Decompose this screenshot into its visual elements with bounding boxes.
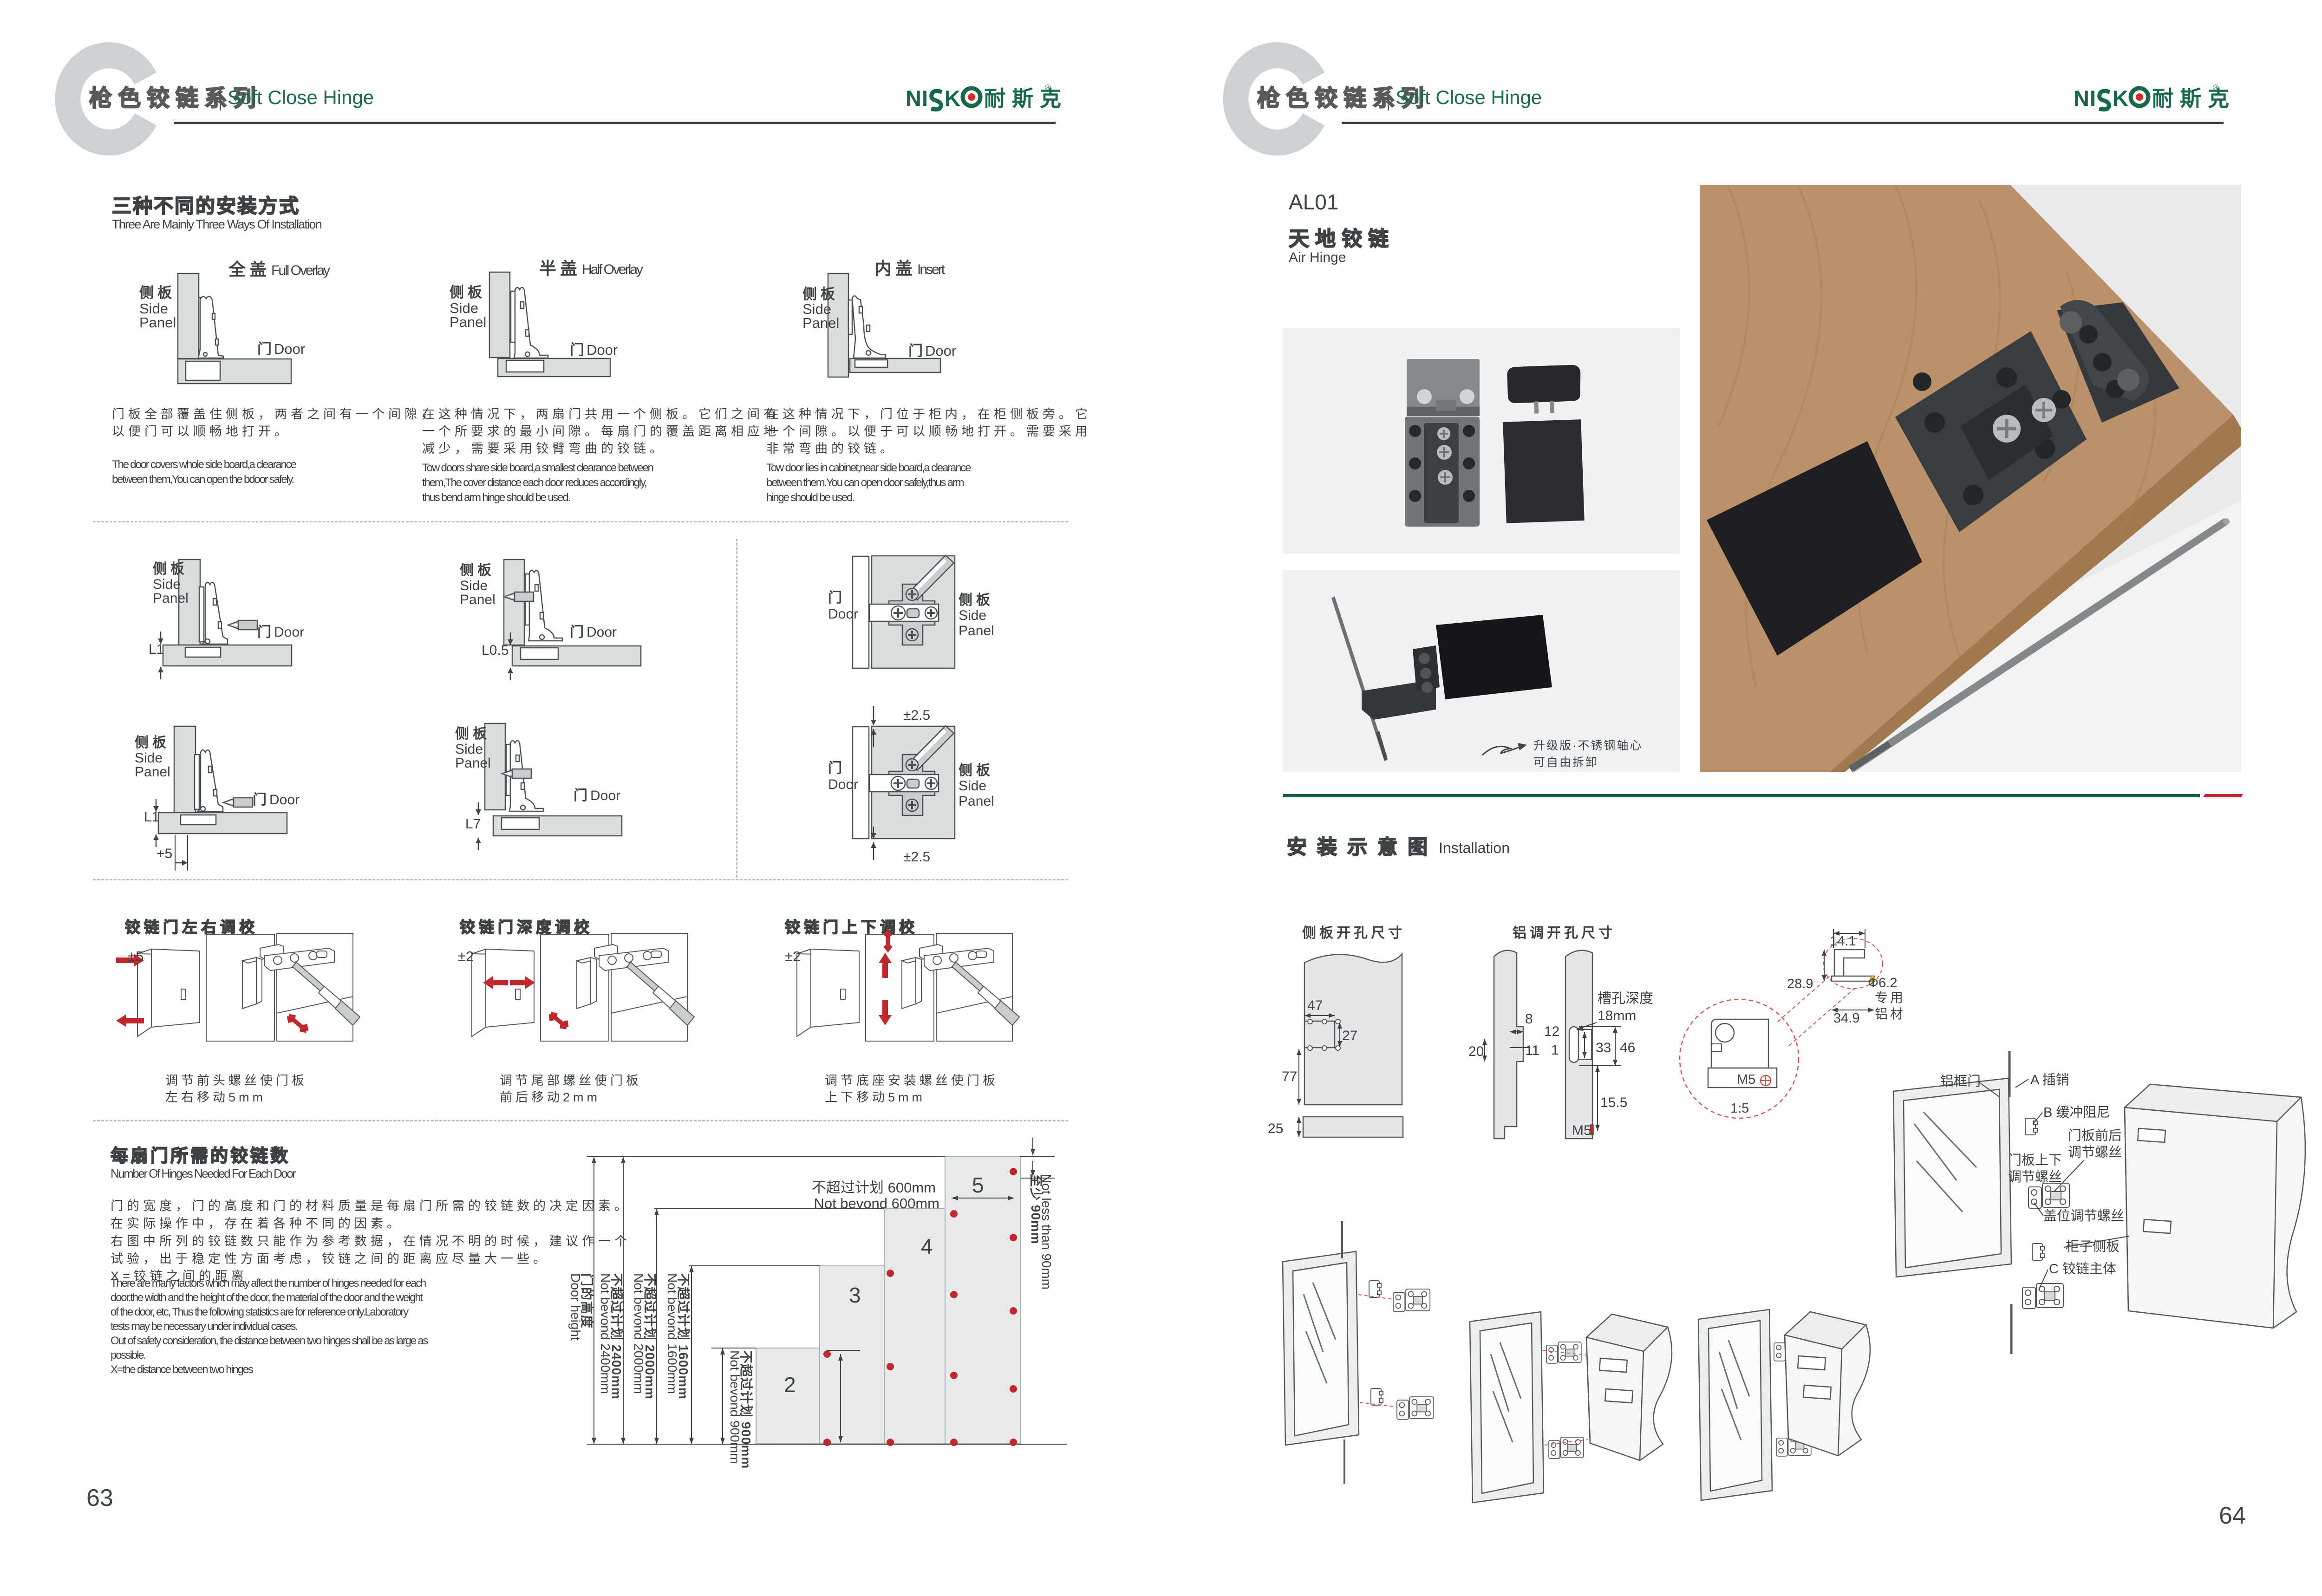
svg-text:Soft Close Hinge: Soft Close Hinge [1396, 86, 1542, 108]
svg-text:25: 25 [1268, 1121, 1283, 1136]
svg-text:不超过计划 900mm: 不超过计划 900mm [739, 1350, 753, 1469]
svg-text:右图中所列的铰链数只能作为参考数据，在情况不明的时候，建议作: 右图中所列的铰链数只能作为参考数据，在情况不明的时候，建议作一个 [111, 1234, 631, 1248]
svg-text:M5: M5 [1737, 1072, 1755, 1087]
svg-text:以便门可以顺畅地打开。: 以便门可以顺畅地打开。 [112, 424, 291, 438]
svg-text:左右移动5mm: 左右移动5mm [165, 1090, 266, 1104]
svg-text:34.9: 34.9 [1833, 1011, 1859, 1026]
svg-text:1: 1 [1551, 1042, 1559, 1058]
svg-text:铝调开孔尺寸: 铝调开孔尺寸 [1513, 925, 1616, 941]
svg-text:在实际操作中，存在着各种不同的因素。: 在实际操作中，存在着各种不同的因素。 [111, 1217, 403, 1231]
svg-text:Panel: Panel [450, 314, 486, 330]
svg-text:不超过计划 2400mm: 不超过计划 2400mm [609, 1273, 624, 1400]
svg-text:Door: Door [828, 777, 858, 792]
svg-text:耐斯克: 耐斯克 [2152, 86, 2236, 111]
svg-text:Insert: Insert [917, 262, 946, 277]
svg-text:±2: ±2 [458, 948, 474, 964]
svg-text:调节尾部螺丝使门板: 调节尾部螺丝使门板 [500, 1074, 642, 1088]
svg-text:门板上下: 门板上下 [2008, 1153, 2062, 1168]
svg-text:NI: NI [2074, 86, 2096, 111]
svg-text:调节前头螺丝使门板: 调节前头螺丝使门板 [165, 1074, 307, 1088]
svg-text:hinge should be used.: hinge should be used. [766, 491, 854, 504]
svg-text:1:5: 1:5 [1730, 1101, 1749, 1116]
svg-text:±2.5: ±2.5 [903, 708, 930, 723]
svg-text:Door: Door [828, 606, 858, 622]
svg-text:of the door, etc, Thus the fol: of the door, etc, Thus the following sta… [111, 1306, 409, 1318]
svg-text:X=the distance between two hin: X=the distance between two hinges [111, 1363, 254, 1376]
svg-text:侧板: 侧板 [460, 563, 495, 578]
svg-text:槽孔深度: 槽孔深度 [1598, 991, 1653, 1006]
svg-text:Door: Door [590, 788, 620, 803]
svg-text:不超过计划 2000mm: 不超过计划 2000mm [643, 1273, 657, 1400]
svg-text:Panel: Panel [802, 315, 839, 331]
svg-text:Panel: Panel [135, 764, 170, 780]
svg-text:±5: ±5 [128, 948, 143, 964]
svg-text:一个间隙。以便于可以顺畅地打开。需要采用铰臂: 一个间隙。以便于可以顺畅地打开。需要采用铰臂 [766, 424, 1091, 438]
svg-text:铰链门深度调校: 铰链门深度调校 [460, 919, 593, 936]
svg-text:门: 门 [257, 341, 272, 357]
svg-text:门: 门 [828, 590, 842, 606]
svg-text:18mm: 18mm [1598, 1008, 1636, 1023]
svg-text:There are many factors which m: There are many factors which may affect … [111, 1277, 426, 1290]
svg-text:Soft Close Hinge: Soft Close Hinge [228, 86, 374, 108]
svg-text:上下移动5mm: 上下移动5mm [825, 1090, 926, 1104]
svg-text:铝框门: 铝框门 [1940, 1074, 1981, 1089]
svg-text:20: 20 [1468, 1044, 1484, 1059]
svg-text:3: 3 [849, 1283, 861, 1307]
svg-text:Side: Side [135, 750, 163, 766]
svg-text:侧板: 侧板 [959, 763, 994, 778]
svg-text:耐斯克: 耐斯克 [984, 86, 1068, 111]
svg-text:tests may be necessary under i: tests may be necessary under individual … [111, 1320, 297, 1333]
svg-text:门: 门 [570, 625, 584, 640]
svg-text:非常弯曲的铰链。: 非常弯曲的铰链。 [766, 442, 896, 456]
svg-text:Door: Door [925, 343, 956, 359]
svg-text:调节螺丝: 调节螺丝 [2008, 1169, 2062, 1185]
svg-text:L7: L7 [465, 816, 481, 832]
svg-text:Panel: Panel [153, 591, 189, 606]
svg-text:试验，出于稳定性方面考虑，铰链之间的距离应尽量大一些。: 试验，出于稳定性方面考虑，铰链之间的距离应尽量大一些。 [111, 1252, 549, 1266]
svg-text:M5: M5 [1572, 1123, 1591, 1138]
svg-text:Full Overlay: Full Overlay [271, 263, 330, 278]
svg-text:专用: 专用 [1875, 990, 1905, 1005]
svg-text:Panel: Panel [460, 592, 496, 607]
svg-text:调节底座安装螺丝使门板: 调节底座安装螺丝使门板 [825, 1074, 998, 1088]
svg-text:门: 门 [574, 788, 587, 803]
svg-text:Tow doors share side board,a s: Tow doors share side board,a smallest cl… [422, 462, 653, 474]
svg-text:Door: Door [587, 625, 617, 640]
svg-text:门板前后: 门板前后 [2068, 1128, 2122, 1143]
svg-text:L0.5: L0.5 [482, 643, 509, 658]
svg-text:Panel: Panel [959, 794, 994, 809]
svg-text:between them,You can open the: between them,You can open the bdoor safe… [112, 473, 294, 486]
svg-text:L1: L1 [149, 642, 164, 657]
svg-text:46: 46 [1620, 1040, 1635, 1055]
svg-text:®: ® [1045, 83, 1051, 92]
svg-text:The door covers whole side boa: The door covers whole side board,a clear… [112, 458, 296, 471]
svg-text:三种不同的安装方式: 三种不同的安装方式 [112, 195, 300, 217]
svg-text:thus bend arm hinge should be: thus bend arm hinge should be used. [422, 491, 570, 504]
svg-text:侧板: 侧板 [135, 735, 170, 750]
svg-text:盖位调节螺丝: 盖位调节螺丝 [2043, 1208, 2124, 1224]
svg-text:Side: Side [153, 577, 181, 592]
svg-text:一个所要求的最小间隙。每扇门的覆盖距离相应地: 一个所要求的最小间隙。每扇门的覆盖距离相应地 [422, 424, 780, 438]
svg-text:Three Are Mainly Three Ways Of: Three Are Mainly Three Ways Of Installat… [112, 217, 322, 231]
svg-text:每扇门所需的铰链数: 每扇门所需的铰链数 [111, 1147, 290, 1166]
svg-text:27: 27 [1342, 1028, 1357, 1043]
svg-text:Side: Side [959, 778, 986, 794]
svg-text:4: 4 [921, 1234, 933, 1258]
svg-text:±2.5: ±2.5 [903, 849, 930, 865]
svg-text:Side: Side [959, 608, 986, 623]
svg-text:Side: Side [460, 578, 488, 593]
svg-text:12: 12 [1544, 1024, 1559, 1039]
svg-text:Out of safety consideration, t: Out of safety consideration, the distanc… [111, 1335, 429, 1347]
svg-text:Not less than 90mm: Not less than 90mm [1039, 1174, 1054, 1290]
svg-text:内盖: 内盖 [874, 259, 916, 278]
svg-text:A 插销: A 插销 [2030, 1072, 2069, 1088]
svg-text:不超过计划 1600mm: 不超过计划 1600mm [676, 1273, 691, 1400]
svg-text:升级版·不锈钢轴心: 升级版·不锈钢轴心 [1533, 739, 1643, 752]
svg-text:侧板: 侧板 [153, 561, 188, 577]
svg-text:±2: ±2 [785, 948, 801, 964]
svg-text:可自由拆卸: 可自由拆卸 [1533, 756, 1598, 769]
svg-text:半盖: 半盖 [539, 259, 581, 278]
svg-text:侧板: 侧板 [959, 593, 994, 608]
svg-text:8: 8 [1525, 1011, 1533, 1027]
svg-text:them,The cover distance each d: them,The cover distance each door reduce… [422, 476, 646, 489]
svg-text:不超过计划 600mm: 不超过计划 600mm [812, 1179, 936, 1196]
svg-text:2: 2 [784, 1373, 796, 1397]
svg-text:Number Of Hinges Needed For Ea: Number Of Hinges Needed For Each Door [111, 1166, 296, 1180]
svg-text:C 铰链主体: C 铰链主体 [2049, 1261, 2116, 1277]
svg-text:门板全部覆盖住侧板，两者之间有一个间隙，: 门板全部覆盖住侧板，两者之间有一个间隙， [112, 407, 437, 421]
svg-text:铰链门上下调校: 铰链门上下调校 [785, 919, 918, 936]
svg-text:Not bevond 600mm: Not bevond 600mm [814, 1195, 939, 1212]
svg-text:28.9: 28.9 [1787, 977, 1813, 991]
svg-text:K: K [945, 86, 960, 111]
svg-text:77: 77 [1282, 1069, 1297, 1084]
svg-text:possible.: possible. [111, 1349, 145, 1361]
svg-text:侧板: 侧板 [802, 286, 839, 302]
svg-text:侧板: 侧板 [455, 726, 490, 742]
svg-text:Panel: Panel [455, 756, 491, 771]
svg-text:NI: NI [906, 86, 928, 111]
svg-text:K: K [2113, 86, 2128, 111]
svg-text:侧板: 侧板 [139, 285, 176, 301]
svg-text:33: 33 [1596, 1040, 1611, 1055]
svg-text:侧板开孔尺寸: 侧板开孔尺寸 [1302, 925, 1405, 941]
svg-text:Door: Door [587, 342, 618, 358]
svg-text:门: 门 [253, 792, 267, 808]
svg-text:全盖: 全盖 [228, 260, 270, 279]
svg-text:Door: Door [274, 625, 304, 640]
svg-text:在这种情况下，门位于柜内，在柜侧板旁。它也需要: 在这种情况下，门位于柜内，在柜侧板旁。它也需要 [766, 407, 1091, 421]
svg-text:门: 门 [828, 761, 842, 776]
svg-text:Door: Door [269, 792, 300, 808]
svg-text:11: 11 [1525, 1043, 1539, 1058]
svg-text:Side: Side [455, 742, 483, 757]
svg-text:door.the width and the height: door.the width and the height of the doo… [111, 1291, 423, 1304]
svg-text:铰链门左右调校: 铰链门左右调校 [125, 919, 258, 936]
svg-text:门的高度: 门的高度 [580, 1273, 594, 1329]
svg-text:5: 5 [972, 1173, 984, 1197]
svg-text:门: 门 [908, 343, 923, 359]
svg-text:侧板: 侧板 [450, 284, 486, 300]
svg-text:门的宽度，门的高度和门的材料质量是每扇门所需的铰链数的决定因: 门的宽度，门的高度和门的材料质量是每扇门所需的铰链数的决定因素。 [111, 1199, 631, 1213]
svg-text:Door: Door [274, 341, 305, 357]
svg-text:B 缓冲阻尼: B 缓冲阻尼 [2043, 1105, 2110, 1120]
svg-text:+5: +5 [157, 846, 172, 861]
svg-text:减少，需要采用铰臂弯曲的铰链。: 减少，需要采用铰臂弯曲的铰链。 [422, 442, 666, 456]
svg-text:门: 门 [570, 342, 584, 358]
svg-text:between them.You can open door: between them.You can open door safely,th… [766, 476, 964, 489]
svg-text:柜子侧板: 柜子侧板 [2066, 1239, 2120, 1254]
svg-text:Panel: Panel [139, 314, 176, 331]
svg-text:铝材: 铝材 [1875, 1007, 1905, 1021]
svg-text:前后移动2mm: 前后移动2mm [500, 1090, 600, 1104]
svg-text:在这种情况下，两扇门共用一个侧板。它们之间有: 在这种情况下，两扇门共用一个侧板。它们之间有 [422, 407, 780, 421]
svg-text:调节螺丝: 调节螺丝 [2068, 1145, 2122, 1160]
svg-text:15.5: 15.5 [1600, 1095, 1627, 1110]
svg-text:Panel: Panel [959, 623, 994, 638]
svg-text:47: 47 [1307, 998, 1323, 1013]
svg-text:®: ® [2213, 83, 2219, 92]
svg-text:门: 门 [257, 625, 271, 640]
svg-text:Tow door lies in cabinet,near: Tow door lies in cabinet,near side board… [766, 462, 971, 474]
svg-text:L1: L1 [144, 809, 159, 825]
svg-text:Half Overlay: Half Overlay [582, 262, 643, 277]
